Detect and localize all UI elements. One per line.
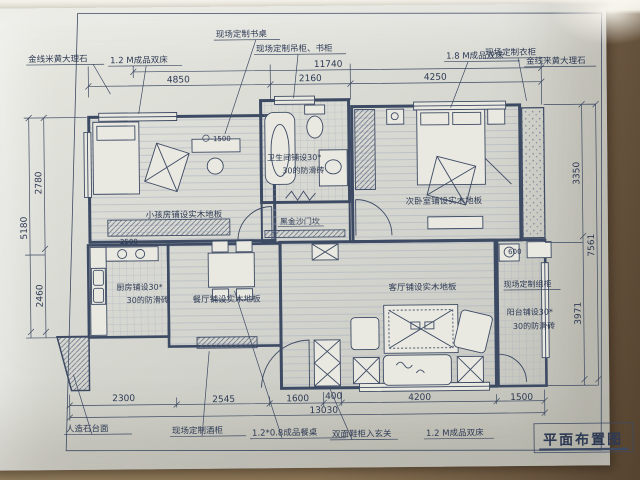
label-counter: 人造石台面 <box>66 423 109 434</box>
label-second-bedroom: 次卧室铺设实木地板 <box>406 195 483 207</box>
dim-right-lower: 3971 <box>574 302 584 325</box>
label-balcony-2: 30的防滑砖 <box>513 321 555 331</box>
stone-countertop <box>57 336 90 390</box>
label-bathroom-1: 卫生间铺设30* <box>267 152 321 163</box>
label-kitchen-1: 厨房铺设30* <box>116 282 162 292</box>
dim-right-upper: 3350 <box>572 162 582 185</box>
dim-left-lower: 2460 <box>35 284 45 307</box>
label-bed-right: 1.8 M成品双床 <box>446 50 504 62</box>
dim-bottom-6: 1500 <box>510 393 533 403</box>
label-dining-table: 1.2*0.8成品餐桌 <box>252 427 318 439</box>
dim-bottom-4: 400 <box>325 392 343 402</box>
floor-plan-drawing: 金线米黄大理石 1.2 M成品双床 现场定制书桌 现场定制吊柜、书柜 现场定制衣… <box>0 0 640 480</box>
drawing-title: 平面布置图 <box>543 431 623 449</box>
dim-bottom-2: 2545 <box>212 395 235 405</box>
threshold-strip <box>265 230 345 238</box>
label-threshold: 黑金沙门坎 <box>280 216 320 226</box>
label-wine-cabinet: 现场定制酒柜 <box>172 425 224 437</box>
dim-desk: 1500 <box>213 135 231 143</box>
dim-seg-left: 4850 <box>167 75 190 85</box>
ac-platform <box>522 108 545 238</box>
label-marble-left: 金线米黄大理石 <box>28 53 88 65</box>
label-bathroom-2: 30的防滑砖 <box>282 165 324 175</box>
label-bottom-bed: 1.2 M成品双床 <box>426 427 484 439</box>
dim-bottom-1: 2300 <box>112 394 135 404</box>
dim-bottom-3: 1600 <box>286 394 309 404</box>
dim-seg-mid: 2160 <box>299 74 322 84</box>
label-child-room: 小孩房铺设实木地板 <box>146 209 223 221</box>
dim-balcony: 600 <box>508 248 521 256</box>
dim-left-upper: 2780 <box>34 171 44 194</box>
label-desk: 现场定制书桌 <box>216 29 268 41</box>
dim-bottom-total: 13030 <box>309 406 338 416</box>
dim-seg-right: 4250 <box>424 73 447 83</box>
photograph-of-floor-plan: 金线米黄大理石 1.2 M成品双床 现场定制书桌 现场定制吊柜、书柜 现场定制衣… <box>0 0 640 480</box>
label-cabinet-right: 现场定制组柜 <box>503 279 551 290</box>
label-balcony-1: 阳台铺设30* <box>507 307 553 317</box>
dim-bottom-5: 4200 <box>408 393 431 403</box>
dim-wardrobe: 2500 <box>120 238 138 246</box>
label-bookcase: 现场定制吊柜、书柜 <box>256 43 333 55</box>
dim-right-total: 7561 <box>587 234 597 257</box>
label-shoe-cabinet: 双面鞋柜入玄关 <box>332 428 392 440</box>
label-bed-left: 1.2 M成品双床 <box>110 55 168 67</box>
dim-top-total: 11740 <box>314 60 343 70</box>
label-living: 客厅铺设实木地板 <box>388 282 457 294</box>
dim-left-total: 5180 <box>20 216 30 239</box>
label-dining: 餐厅铺设实木地板 <box>193 294 262 306</box>
label-marble-right: 金线米黄大理石 <box>526 55 586 67</box>
label-kitchen-2: 30的防滑砖 <box>127 295 169 305</box>
